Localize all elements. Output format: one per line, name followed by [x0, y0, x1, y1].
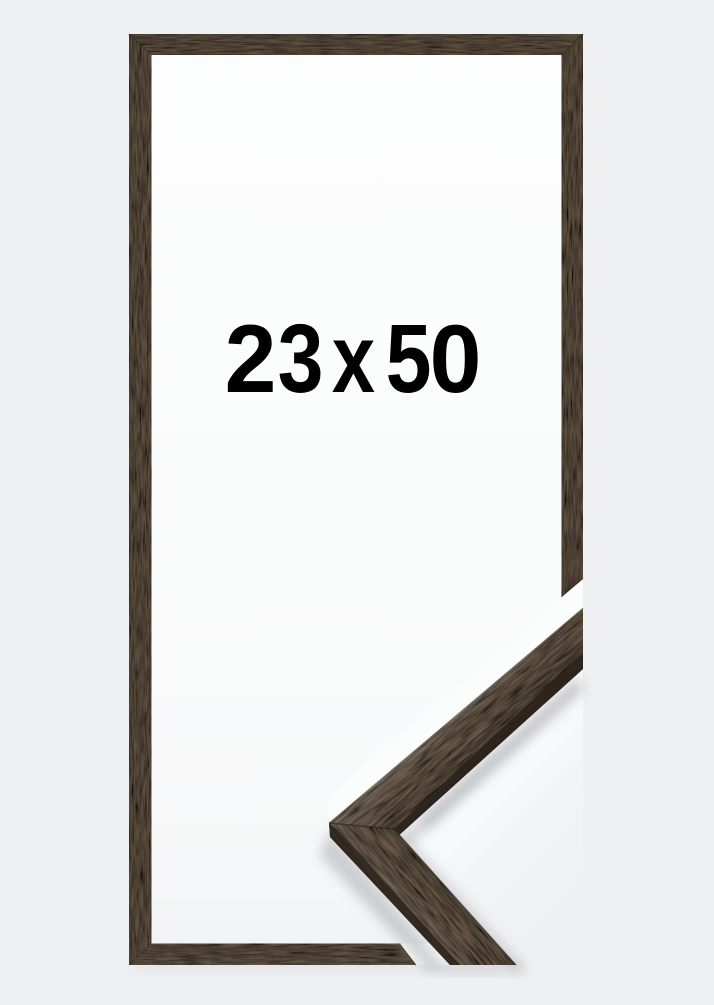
svg-text:0: 0	[430, 305, 482, 413]
svg-text:5: 5	[386, 306, 432, 414]
svg-text:x: x	[332, 304, 375, 413]
svg-text:3: 3	[278, 306, 324, 414]
svg-text:2: 2	[225, 305, 277, 413]
